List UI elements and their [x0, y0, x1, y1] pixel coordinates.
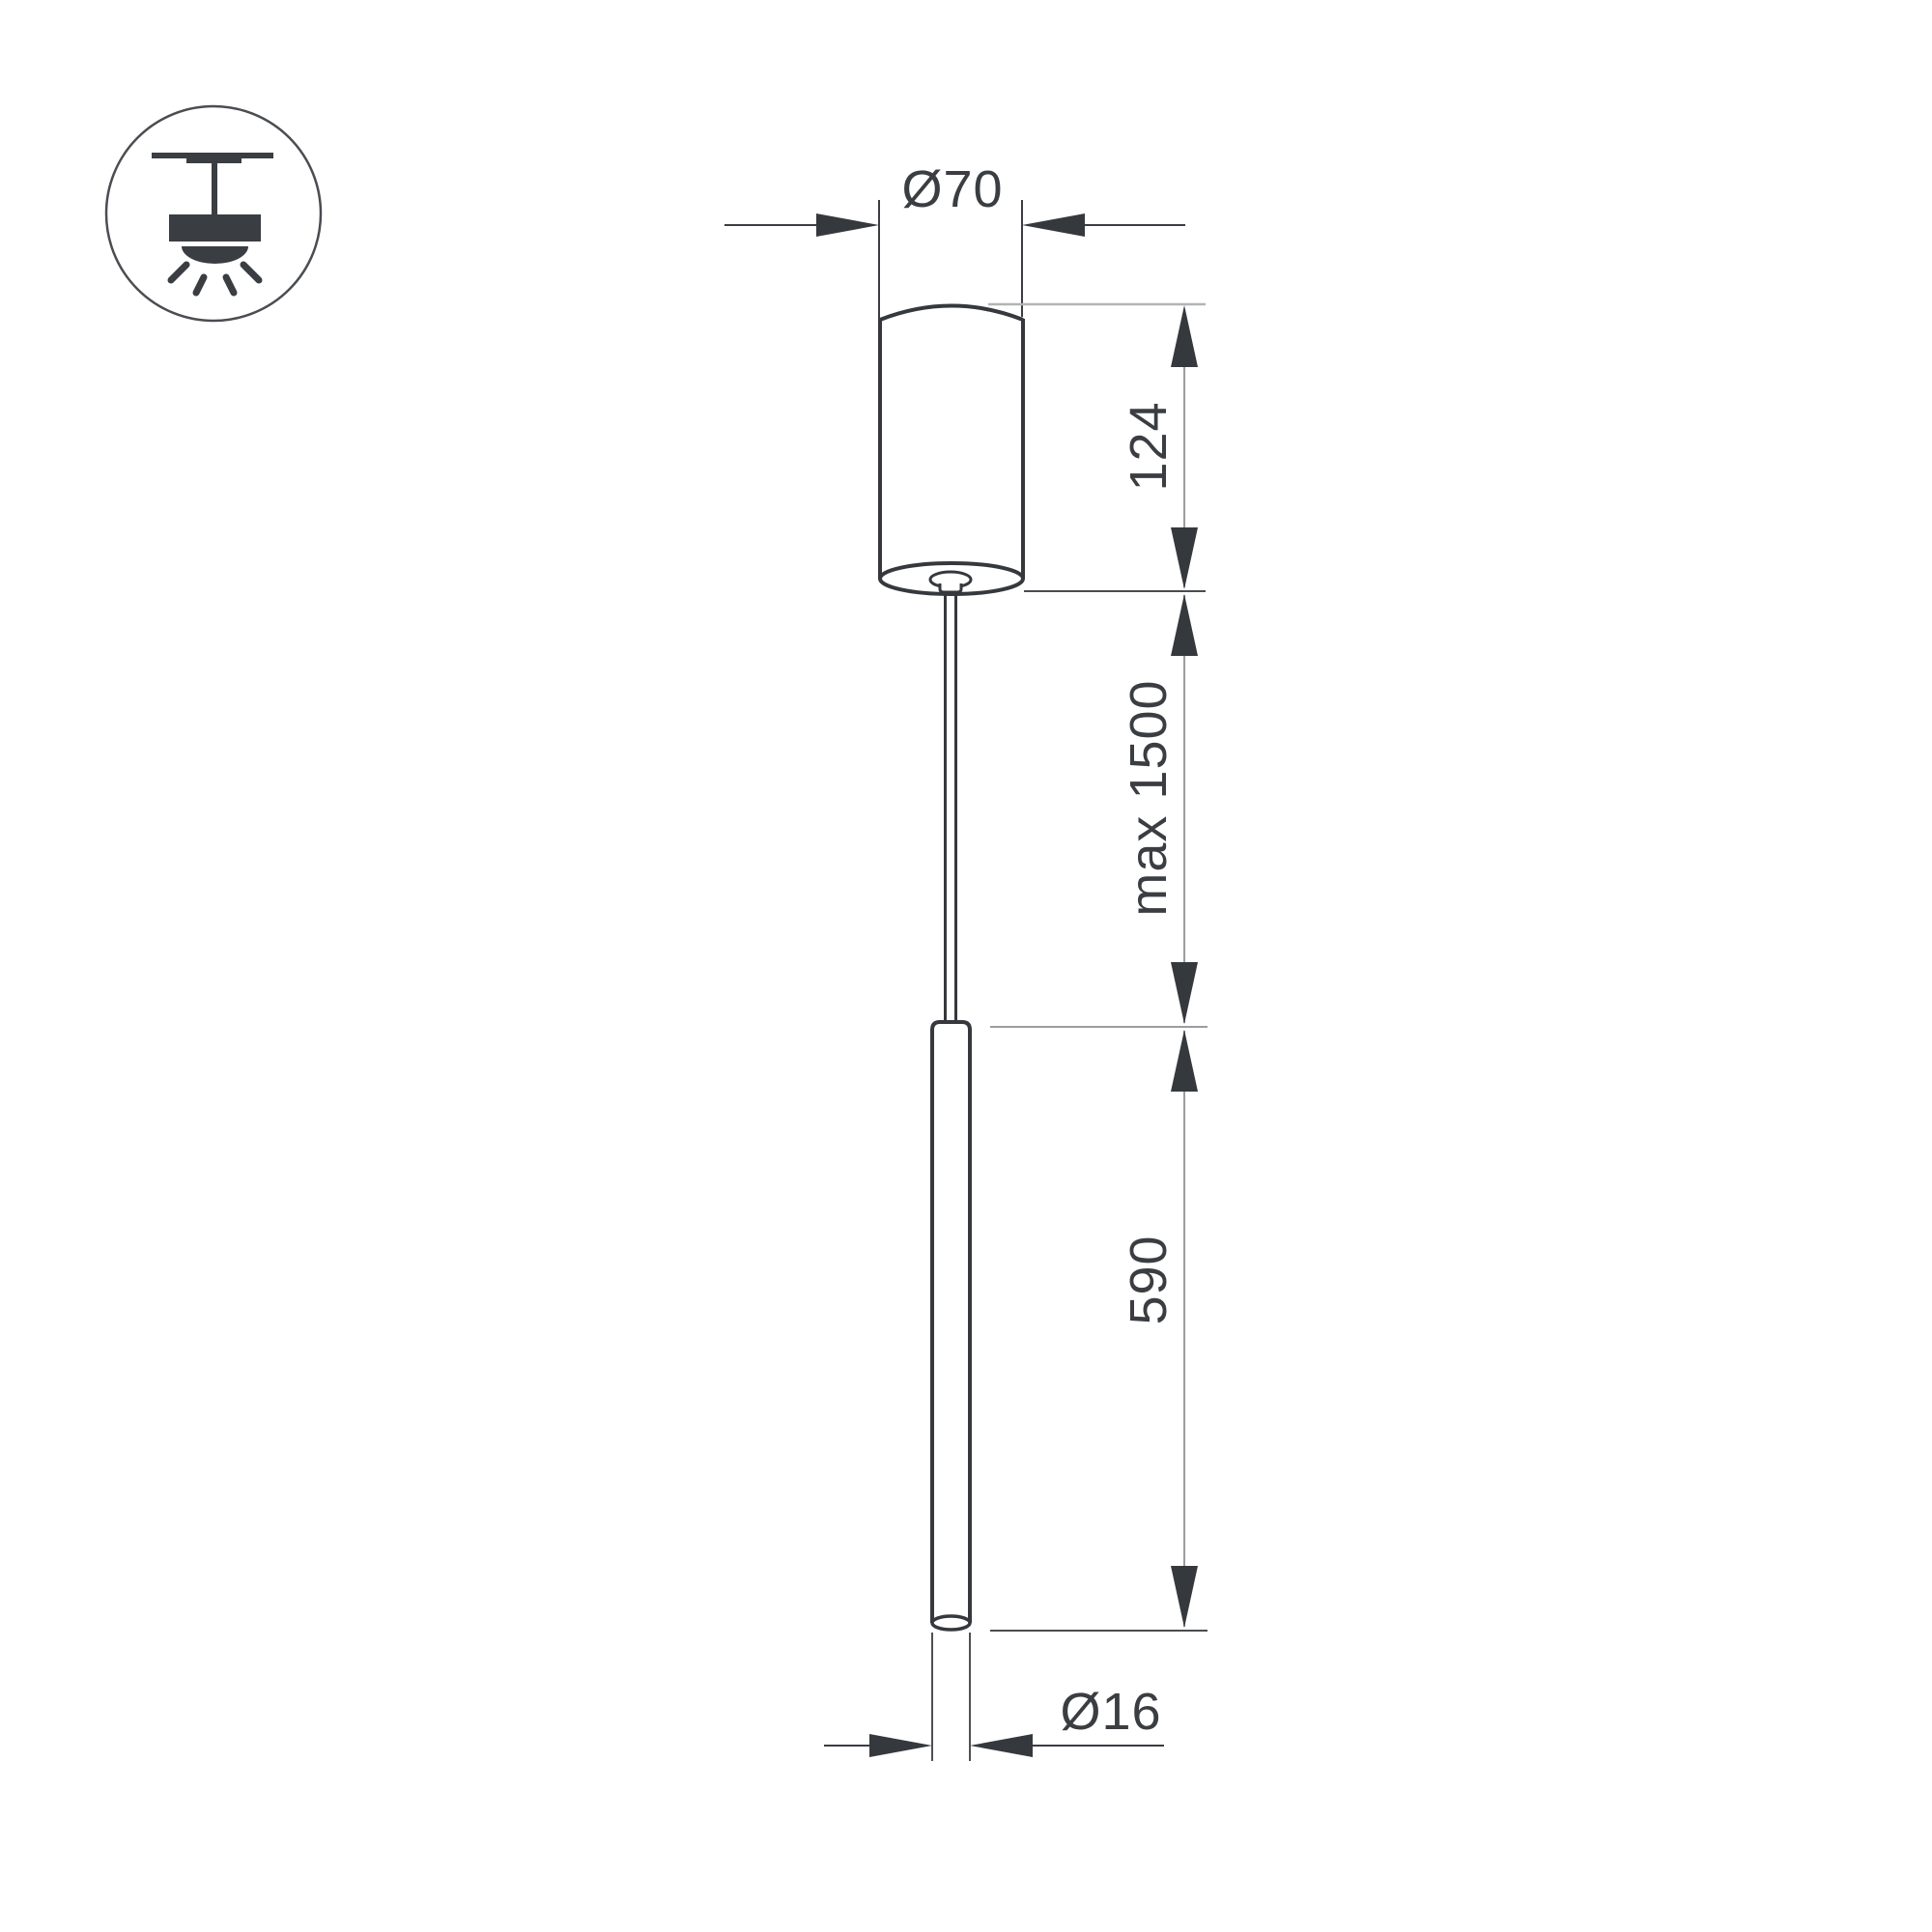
- tube-body: [932, 1022, 970, 1623]
- label-canopy-height: 124: [1122, 401, 1175, 491]
- suspension-cable: [946, 587, 956, 1026]
- icon-lamp-dome: [182, 246, 248, 264]
- arrow-right-icon: [816, 213, 879, 237]
- icon-lamp-body: [169, 214, 261, 241]
- arrow-down-icon: [1171, 527, 1198, 589]
- label-tube-length: 590: [1122, 1235, 1175, 1324]
- arrow-up-icon: [1171, 594, 1198, 656]
- arrow-left-icon: [1022, 213, 1085, 237]
- arrow-right-icon: [869, 1734, 932, 1757]
- pendant-tube: [932, 1022, 970, 1630]
- arrow-left-icon: [970, 1734, 1033, 1757]
- arrow-up-icon: [1171, 305, 1198, 367]
- canopy: [880, 306, 1023, 595]
- drawing-canvas: [0, 0, 1932, 1932]
- dim-tube-length: [1171, 1030, 1198, 1628]
- icon-light-rays: [171, 265, 259, 293]
- arrow-up-icon: [1171, 1030, 1198, 1092]
- tube-bottom-ellipse: [932, 1616, 970, 1630]
- label-suspension-length: max 1500: [1122, 679, 1175, 916]
- arrow-down-icon: [1171, 1566, 1198, 1628]
- technical-drawing-page: Ø70 124 max 1500 590 Ø16: [0, 0, 1932, 1932]
- arrow-down-icon: [1171, 962, 1198, 1024]
- label-canopy-diameter: Ø70: [901, 163, 1003, 215]
- icon-stem: [212, 157, 217, 215]
- canopy-body: [880, 306, 1023, 580]
- cable-gland-stub: [940, 583, 961, 592]
- label-tube-diameter: Ø16: [1060, 1686, 1161, 1738]
- pendant-ceiling-light-icon: [106, 106, 321, 321]
